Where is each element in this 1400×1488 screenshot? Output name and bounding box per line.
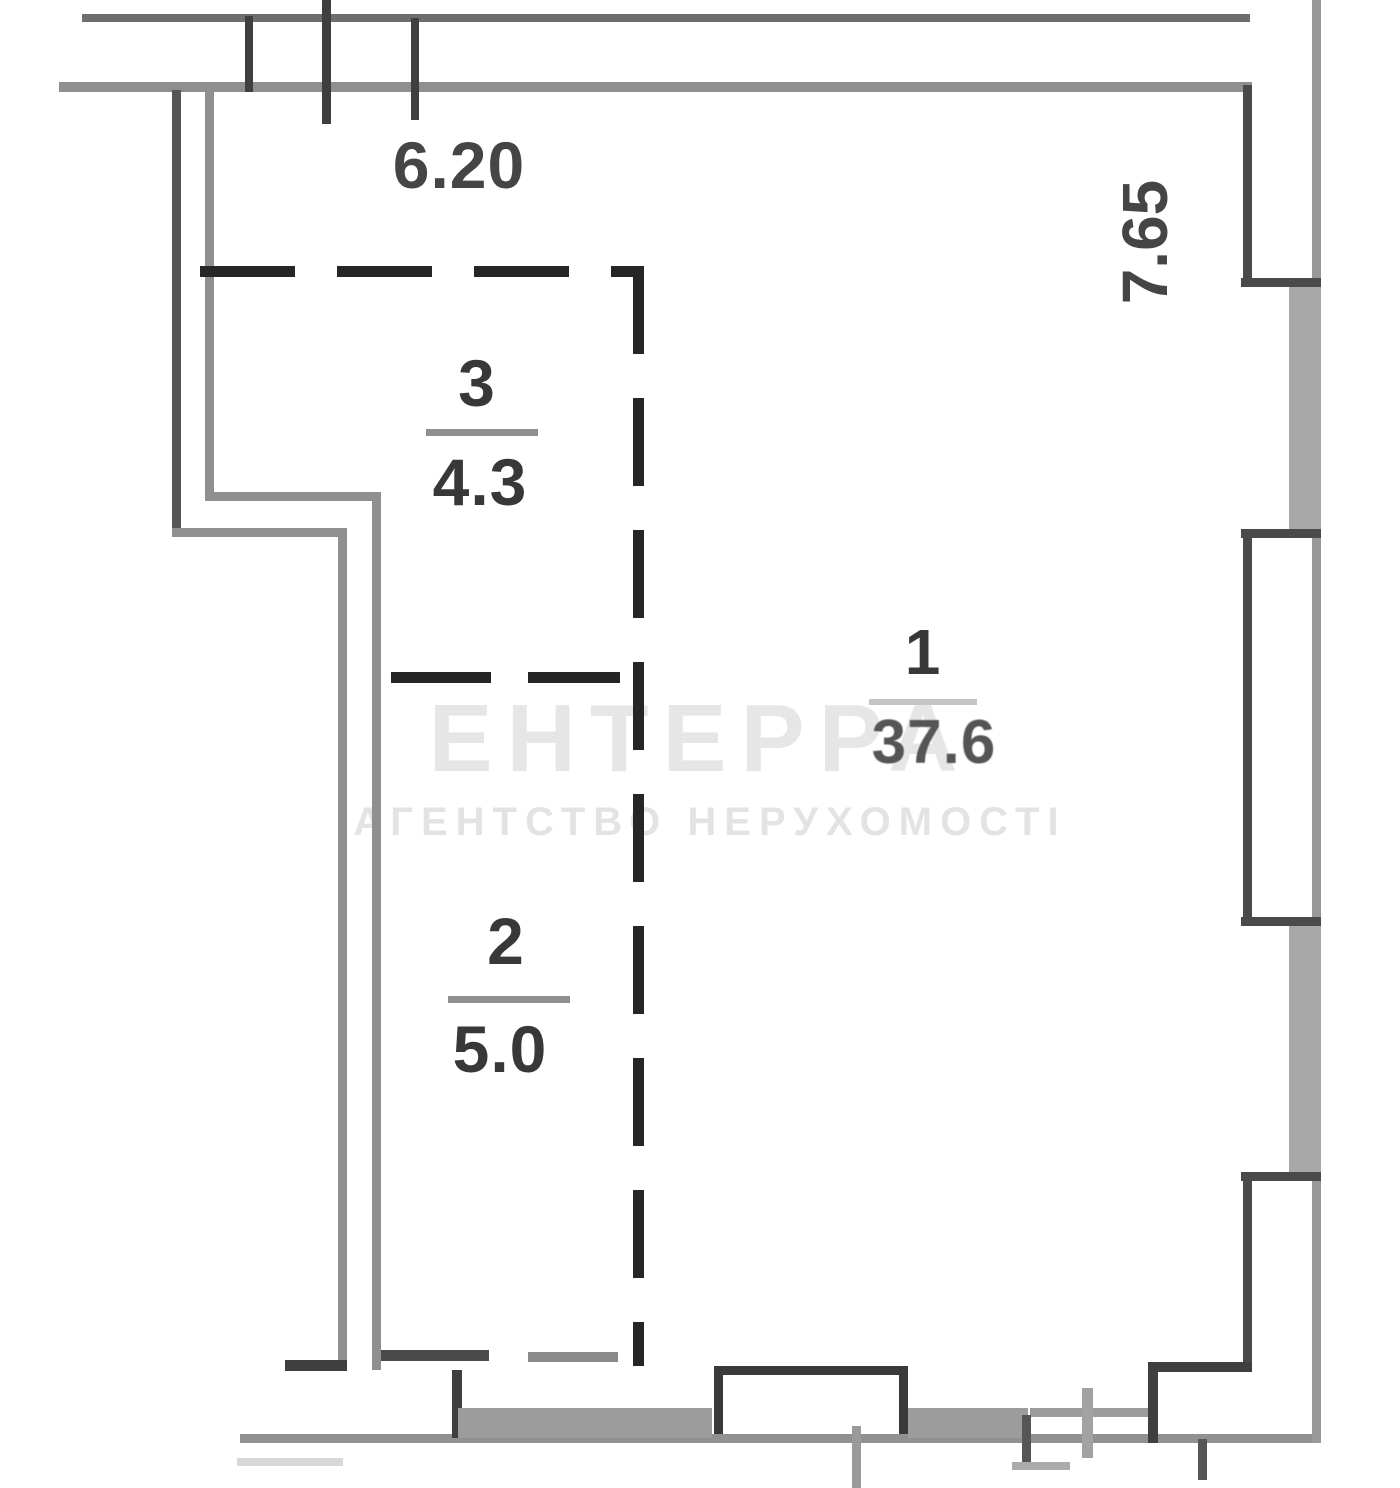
window-sill-1 bbox=[1241, 278, 1321, 287]
room3-area: 4.3 bbox=[433, 449, 528, 515]
wall-right-inner-3 bbox=[1243, 1181, 1252, 1370]
room1-area: 37.6 bbox=[872, 712, 997, 774]
wall-bottom-step-vertical bbox=[1022, 1415, 1031, 1468]
room3-fraction-line bbox=[426, 429, 538, 436]
wall-left-inner-upper bbox=[205, 90, 214, 499]
room1-fraction-line bbox=[869, 699, 977, 705]
wall-left-step-outer bbox=[172, 528, 347, 537]
wall-room2-bottom-left bbox=[381, 1350, 489, 1361]
wall-right-inner-2 bbox=[1243, 538, 1252, 917]
dimension-tick-bottom-2 bbox=[1082, 1388, 1093, 1458]
wall-left-bottom-cap bbox=[285, 1360, 347, 1371]
wall-left-outer-upper bbox=[172, 90, 181, 537]
wall-top-outer bbox=[82, 14, 1250, 22]
wall-bottom-line bbox=[240, 1434, 1321, 1443]
wall-bottom-band-1 bbox=[458, 1408, 712, 1438]
dimension-tick-top-1 bbox=[245, 16, 253, 92]
room3-number: 3 bbox=[458, 350, 496, 416]
wall-left-inner-lower bbox=[372, 492, 381, 1370]
wall-bottom-step-horizontal bbox=[1012, 1462, 1070, 1470]
floor-plan: ЕНТЕРРА АГЕНТСТВО НЕРУХОМОСТІ 6.20 7.65 bbox=[0, 0, 1400, 1488]
window-sill-2 bbox=[1241, 529, 1321, 538]
balcony-door-opening bbox=[714, 1366, 908, 1434]
dimension-tick-bottom-3 bbox=[1198, 1439, 1207, 1480]
room1-number: 1 bbox=[905, 620, 942, 684]
dimension-tick-top-3 bbox=[411, 18, 419, 120]
dimension-tick-bottom-1 bbox=[852, 1426, 861, 1488]
wall-right-fill-2 bbox=[1289, 926, 1321, 1172]
wall-right-step-horizontal bbox=[1148, 1362, 1252, 1372]
dashed-partition-top bbox=[200, 266, 640, 277]
wall-bottom-faint-left bbox=[237, 1458, 343, 1466]
wall-room2-bottom-right bbox=[528, 1352, 618, 1362]
wall-right-inner-1 bbox=[1243, 85, 1252, 282]
wall-left-outer-lower bbox=[338, 528, 347, 1370]
dimension-label-top: 6.20 bbox=[393, 132, 525, 198]
dimension-label-right: 7.65 bbox=[1113, 142, 1177, 342]
watermark-text-small: АГЕНТСТВО НЕРУХОМОСТІ bbox=[353, 800, 1066, 845]
room2-number: 2 bbox=[487, 908, 525, 974]
room2-area: 5.0 bbox=[453, 1016, 548, 1082]
window-sill-3 bbox=[1241, 917, 1321, 926]
window-sill-4 bbox=[1241, 1172, 1321, 1181]
dimension-tick-top-2 bbox=[322, 0, 331, 124]
wall-left-step-inner bbox=[205, 492, 381, 501]
wall-bottom-band-2 bbox=[908, 1408, 1028, 1438]
wall-right-step-vertical bbox=[1148, 1362, 1158, 1443]
wall-top-inner bbox=[59, 82, 1252, 92]
dashed-partition-vertical bbox=[633, 266, 644, 1366]
wall-right-outer bbox=[1312, 0, 1321, 1443]
room2-fraction-line bbox=[448, 996, 570, 1003]
wall-right-fill-1 bbox=[1289, 287, 1321, 529]
dashed-partition-middle bbox=[391, 672, 620, 683]
